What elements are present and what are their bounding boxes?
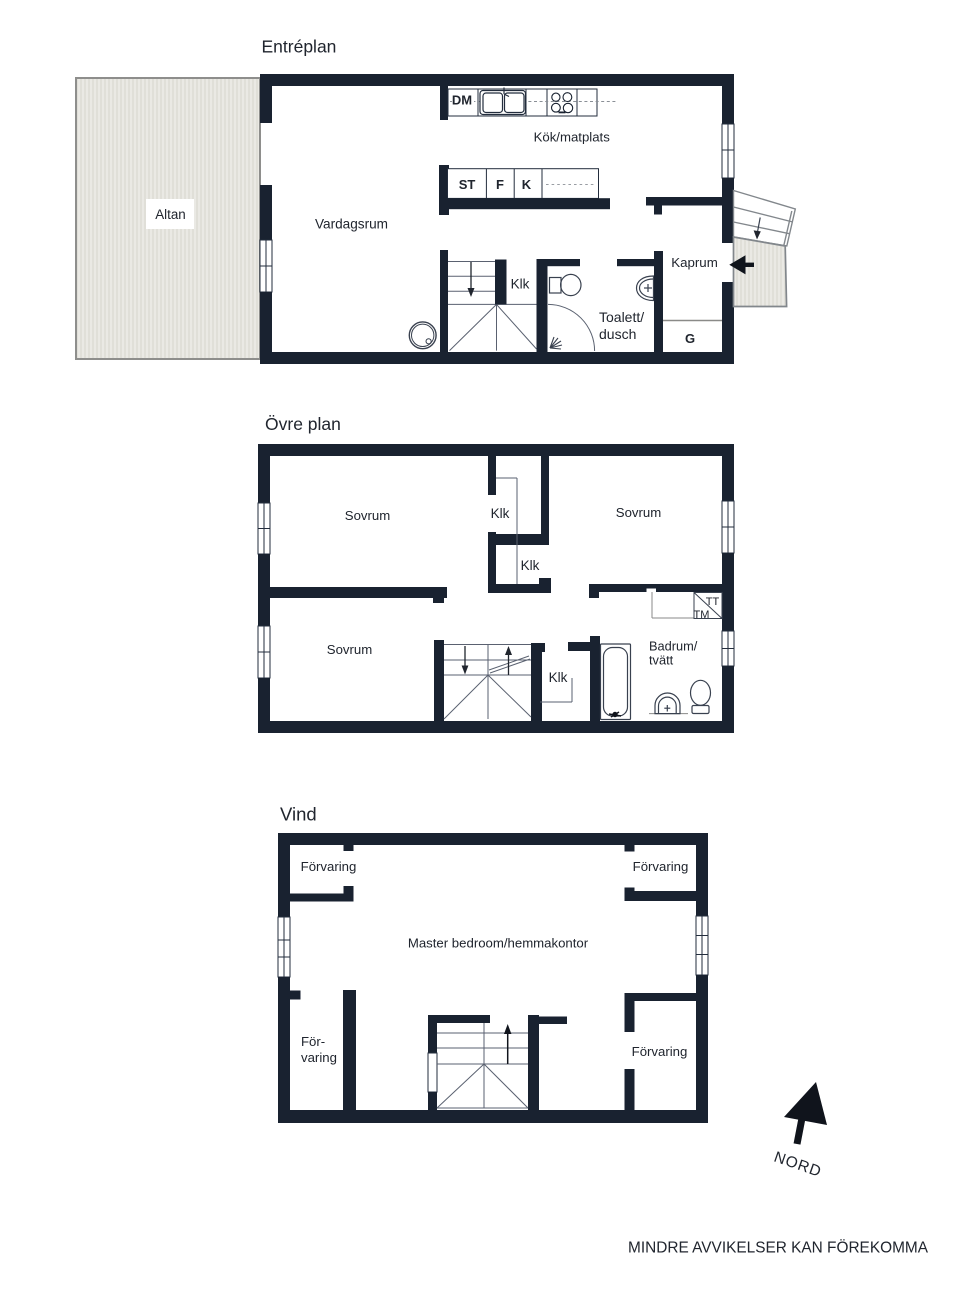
svg-text:Vind: Vind: [280, 804, 317, 825]
svg-text:dusch: dusch: [599, 326, 636, 342]
svg-text:ST: ST: [459, 177, 476, 192]
svg-text:Badrum/: Badrum/: [649, 639, 698, 654]
svg-text:Klk: Klk: [491, 506, 510, 521]
svg-text:TT: TT: [706, 596, 720, 608]
svg-text:varing: varing: [301, 1050, 337, 1065]
svg-text:G: G: [685, 331, 695, 346]
svg-text:F: F: [496, 177, 504, 192]
svg-text:Förvaring: Förvaring: [633, 859, 689, 874]
svg-text:Vardagsrum: Vardagsrum: [315, 217, 388, 232]
svg-text:K: K: [522, 177, 532, 192]
svg-text:Klk: Klk: [549, 670, 568, 685]
svg-text:Övre plan: Övre plan: [265, 414, 341, 434]
svg-text:NORD: NORD: [772, 1149, 824, 1181]
svg-text:Förvaring: Förvaring: [301, 859, 357, 874]
svg-text:Kaprum: Kaprum: [671, 255, 718, 270]
svg-text:TM: TM: [694, 609, 710, 621]
svg-text:DM: DM: [452, 93, 472, 108]
svg-text:Sovrum: Sovrum: [327, 642, 372, 657]
svg-text:Master bedroom/hemmakontor: Master bedroom/hemmakontor: [408, 936, 589, 951]
svg-text:Kök/matplats: Kök/matplats: [534, 130, 611, 145]
svg-text:Altan: Altan: [155, 207, 186, 222]
svg-text:Sovrum: Sovrum: [616, 505, 661, 520]
svg-text:MINDRE AVVIKELSER KAN FÖREKOMM: MINDRE AVVIKELSER KAN FÖREKOMMA: [628, 1239, 929, 1257]
svg-text:För-: För-: [301, 1034, 325, 1049]
svg-text:Klk: Klk: [521, 558, 540, 573]
svg-text:Förvaring: Förvaring: [632, 1044, 688, 1059]
svg-text:Toalett/: Toalett/: [599, 309, 644, 325]
svg-text:Sovrum: Sovrum: [345, 508, 390, 523]
svg-text:Klk: Klk: [511, 277, 530, 292]
svg-text:Entréplan: Entréplan: [262, 37, 337, 57]
svg-text:tvätt: tvätt: [649, 652, 674, 667]
